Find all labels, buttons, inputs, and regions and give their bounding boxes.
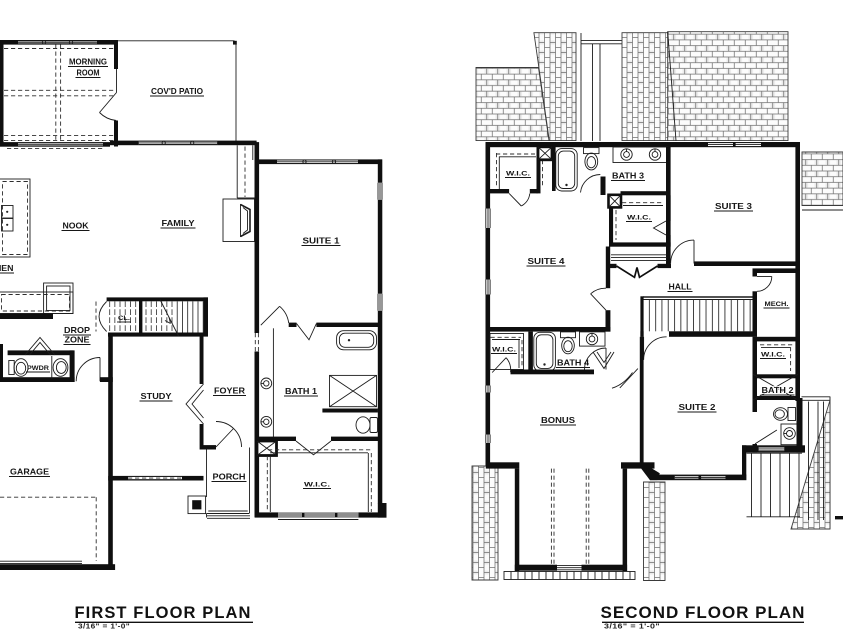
svg-text:SUITE 4: SUITE 4: [528, 257, 566, 266]
svg-text:SUITE 2: SUITE 2: [679, 403, 717, 412]
svg-text:W.I.C.: W.I.C.: [761, 352, 785, 359]
svg-text:BONUS: BONUS: [541, 416, 576, 425]
svg-text:ROOM: ROOM: [77, 69, 100, 78]
svg-text:SUITE 3: SUITE 3: [715, 202, 753, 211]
svg-text:W.I.C.: W.I.C.: [627, 215, 651, 222]
svg-text:SECOND FLOOR PLAN: SECOND FLOOR PLAN: [601, 603, 806, 622]
svg-text:ZONE: ZONE: [65, 336, 91, 345]
svg-text:3/16" = 1'-0": 3/16" = 1'-0": [78, 624, 130, 631]
svg-text:FAMILY: FAMILY: [162, 219, 196, 228]
svg-text:KITCHEN: KITCHEN: [0, 264, 14, 273]
svg-text:W.I.C.: W.I.C.: [304, 482, 330, 489]
svg-text:DROP: DROP: [64, 326, 91, 335]
svg-text:W.I.C.: W.I.C.: [492, 347, 516, 354]
svg-text:PORCH: PORCH: [213, 473, 246, 482]
svg-text:CL.: CL.: [118, 315, 130, 322]
svg-text:STUDY: STUDY: [141, 392, 173, 401]
svg-text:FIRST FLOOR PLAN: FIRST FLOOR PLAN: [74, 604, 251, 622]
svg-text:MECH.: MECH.: [765, 301, 789, 308]
svg-text:HALL: HALL: [669, 283, 692, 292]
svg-text:FOYER: FOYER: [214, 387, 245, 396]
svg-text:BATH 1: BATH 1: [285, 387, 317, 396]
svg-text:GARAGE: GARAGE: [10, 468, 50, 477]
svg-text:COV'D PATIO: COV'D PATIO: [151, 87, 204, 96]
svg-text:NOOK: NOOK: [63, 222, 89, 231]
svg-text:PWDR: PWDR: [27, 365, 49, 372]
svg-text:W.I.C.: W.I.C.: [506, 171, 530, 178]
svg-text:MORNING: MORNING: [69, 58, 107, 67]
svg-text:3/16" = 1'-0": 3/16" = 1'-0": [604, 624, 660, 631]
svg-text:SUITE 1: SUITE 1: [303, 237, 341, 246]
svg-text:BATH 2: BATH 2: [762, 386, 794, 395]
svg-text:BATH 3: BATH 3: [612, 172, 644, 181]
